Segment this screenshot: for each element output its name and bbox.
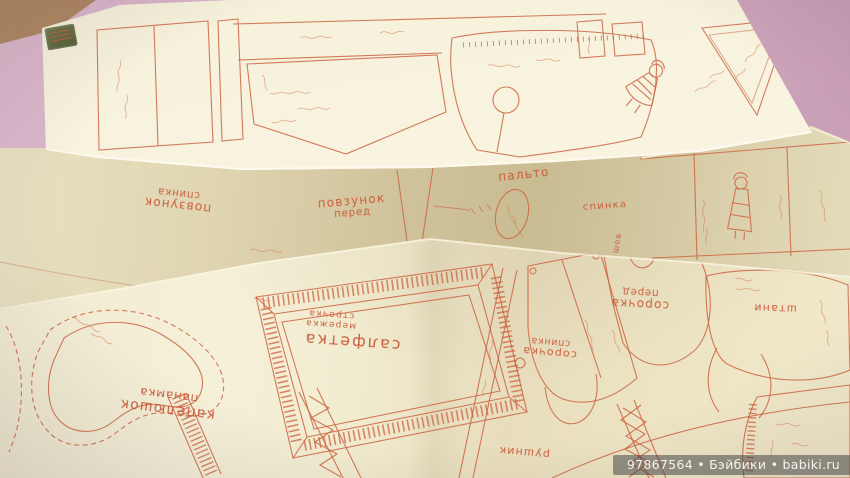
label-merezhka: мережка строчка — [305, 306, 357, 329]
label-sorochka-pered: сорочка перед — [610, 284, 670, 311]
label-shtany: штани — [753, 301, 797, 315]
napkin-outline — [256, 264, 527, 458]
rect-pieces-left — [97, 21, 213, 150]
ruled-lines — [640, 142, 850, 260]
watermark-text: 97867564 • Бэйбики • babiki.ru — [627, 457, 840, 472]
label-sorochka-spynka: сорочка спинка — [522, 333, 579, 360]
doll-figure-icon — [727, 172, 754, 240]
pattern-sheets-photo: повзунок спинка повзунок перед пальто сп… — [0, 0, 850, 478]
triangle-piece — [702, 19, 790, 115]
pentagon-piece — [247, 55, 446, 154]
keyhole-neck-opening — [493, 87, 519, 113]
watermark: 97867564 • Бэйбики • babiki.ru — [613, 455, 850, 475]
dress-piece — [451, 30, 657, 157]
doll-figure-icon — [616, 53, 675, 118]
oval-stamp — [490, 186, 533, 242]
